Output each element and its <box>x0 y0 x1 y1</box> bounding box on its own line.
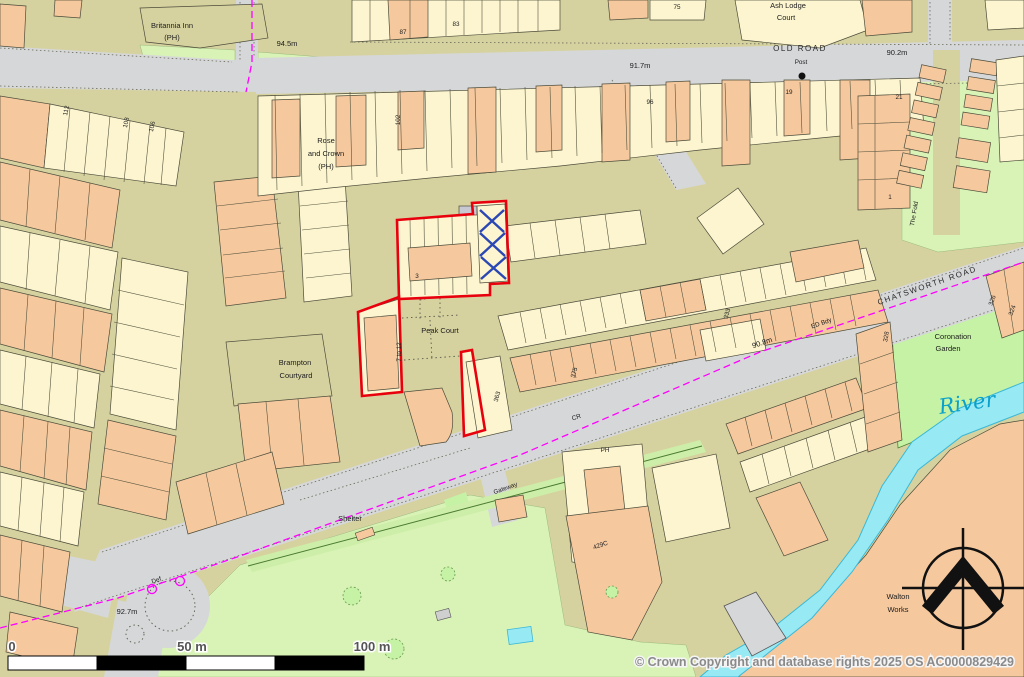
map-label: Post <box>795 59 808 66</box>
map-label: Brampton <box>279 358 312 367</box>
map-label: and Crown <box>308 149 344 158</box>
map-label: 87 <box>399 29 407 36</box>
map-label: 83 <box>452 21 460 28</box>
map-label: Coronation <box>935 332 972 341</box>
map-label: Ash Lodge <box>770 1 806 10</box>
tree <box>606 586 618 598</box>
map-label: PH <box>601 447 610 454</box>
scale-fifty: 50 m <box>177 639 207 654</box>
map-label: 102 <box>395 114 402 125</box>
os-map-viewport[interactable]: Britannia Inn(PH)94.5m91.7mOLD ROADPost9… <box>0 0 1024 677</box>
map-label: (PH) <box>164 33 180 42</box>
map-label: Peak Court <box>421 326 459 335</box>
tree <box>343 587 361 605</box>
map-label: 1 <box>888 194 892 201</box>
os-map-canvas: Britannia Inn(PH)94.5m91.7mOLD ROADPost9… <box>0 0 1024 677</box>
map-label: 94.5m <box>277 39 298 48</box>
map-label: (PH) <box>318 162 334 171</box>
map-label: Courtyard <box>280 371 313 380</box>
map-label: 92.7m <box>117 607 138 616</box>
scale-zero: 0 <box>8 639 15 654</box>
pond <box>507 626 533 644</box>
post-marker <box>799 73 806 80</box>
map-label: OLD ROAD <box>773 44 827 53</box>
map-label: 21 <box>895 94 903 101</box>
map-label: Rose <box>317 136 335 145</box>
tree <box>441 567 455 581</box>
road-right-vertical <box>928 0 952 46</box>
brampton-courtyard <box>226 334 332 406</box>
map-label: Court <box>777 13 796 22</box>
roundabout-carriageway <box>126 564 210 648</box>
map-label: Britannia Inn <box>151 21 193 30</box>
map-label: Walton <box>886 592 909 601</box>
copyright-notice: © Crown Copyright and database rights 20… <box>635 655 1014 669</box>
scale-hundred: 100 m <box>354 639 391 654</box>
map-label: Shelter <box>338 514 362 523</box>
map-label: Garden <box>935 344 960 353</box>
map-label: 96 <box>646 99 654 106</box>
glasshouse <box>477 204 508 283</box>
map-label: Works <box>887 605 908 614</box>
map-label: 19 <box>785 89 793 96</box>
map-label: 7 to 12 <box>396 342 403 362</box>
map-label: 75 <box>673 4 681 11</box>
map-label: 3 <box>415 273 419 280</box>
map-label: 90.2m <box>887 48 908 57</box>
map-label: 91.7m <box>630 61 651 70</box>
